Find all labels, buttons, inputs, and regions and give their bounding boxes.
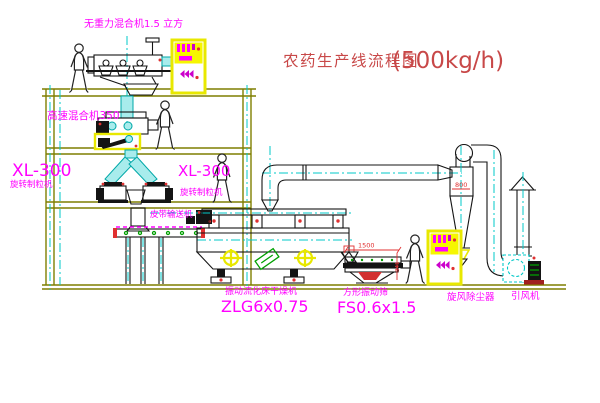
label-center-granulator-name: 旋转制粒机: [180, 187, 223, 198]
label-sieve-model: FS0.6x1.5: [337, 298, 416, 317]
label-belt-conveyor: 皮带输送机: [150, 209, 193, 220]
granulator-left: [96, 182, 128, 203]
person-top-floor-icon: [69, 44, 88, 93]
label-left-granulator-model: XL-300: [12, 161, 71, 181]
drawing-capacity: (500kg/h): [392, 48, 504, 74]
person-second-floor-icon: [156, 101, 175, 150]
label-dryer-name: 振动流化床干燥机: [225, 285, 297, 297]
control-cabinet-right: [428, 231, 461, 284]
cyclone-dimension: 800: [455, 181, 467, 189]
vibrating-sieve: 1500 341: [342, 242, 410, 284]
y-chute: [105, 150, 157, 185]
cad-drawing-canvas: 800 1500 341: [0, 0, 600, 403]
sieve-length-dimension: 1500: [358, 242, 375, 250]
label-dryer-model: ZLG6x0.75: [221, 297, 309, 316]
exhaust-duct: [262, 146, 462, 213]
fluid-bed-dryer: [150, 209, 356, 283]
process-flow-diagram: 800 1500 341: [0, 0, 600, 403]
label-top-mixer: 无重力混合机1.5 立方: [84, 17, 183, 30]
person-ground-icon: [406, 235, 425, 284]
ground-line: [42, 285, 566, 289]
granulator-right: [141, 182, 173, 203]
label-fan: 引风机: [511, 290, 540, 302]
label-cyclone: 旋风除尘器: [447, 291, 495, 303]
belt-conveyor: [113, 227, 205, 284]
label-sieve-name: 方形振动筛: [343, 286, 388, 298]
label-center-granulator-model: XL-300: [178, 162, 230, 180]
label-mid-mixer: 高速混合机350: [47, 109, 120, 122]
induced-draft-fan: [503, 255, 544, 285]
mixer-downpipe: [121, 96, 133, 118]
control-cabinet-top: [172, 40, 205, 93]
sieve-height-dimension: 341: [395, 262, 401, 273]
label-left-granulator-name: 旋转制粒机: [10, 179, 53, 190]
floor-slab-second: [46, 148, 251, 154]
